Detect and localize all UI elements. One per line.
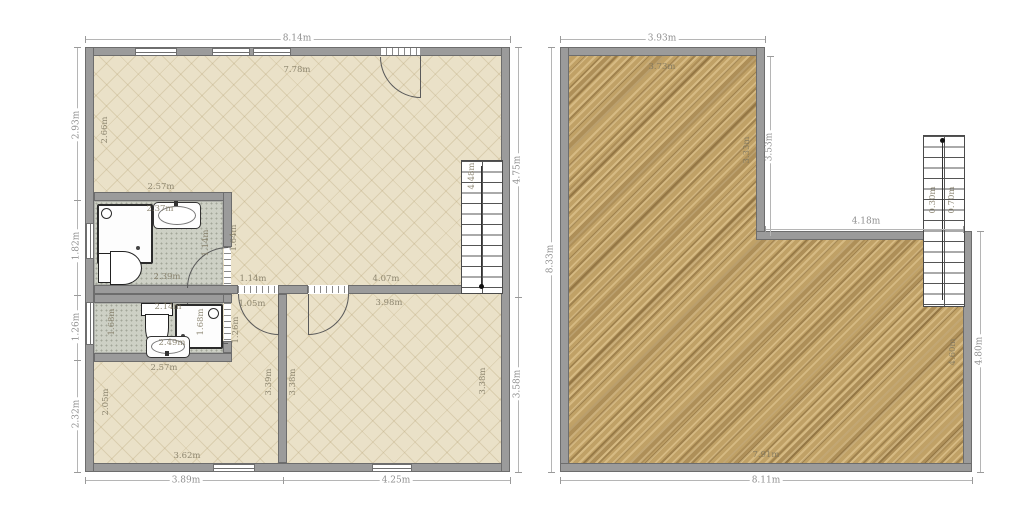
dim-label: 4.07m (373, 275, 400, 284)
dim-tick (560, 36, 561, 43)
dim-label: 1.82m (73, 230, 82, 263)
shower-head-icon (208, 308, 219, 319)
dim-label: 1.26m (232, 317, 241, 344)
dim-label: 1.05m (239, 300, 266, 309)
dim-label: 3.33m (743, 137, 752, 164)
dim-label: 4.18m (850, 218, 883, 227)
dim-tick (74, 295, 81, 296)
window (213, 464, 255, 472)
dim-label: 2.93m (73, 109, 82, 142)
dim-line (765, 229, 963, 230)
dim-tick (74, 47, 81, 48)
dim-label: 2.57m (148, 183, 175, 192)
dim-label: 3.89m (170, 477, 203, 486)
dim-tick (510, 36, 511, 43)
dim-label: 3.62m (174, 452, 201, 461)
dim-label: 4.75m (514, 154, 523, 187)
dim-tick (767, 236, 774, 237)
dim-tick (74, 200, 81, 201)
wall (223, 294, 232, 303)
dim-label: 2.39m (154, 273, 181, 282)
dim-label: 8.11m (750, 477, 783, 486)
dim-label: 4.48m (468, 163, 477, 190)
dim-label: 0.30m (929, 187, 938, 214)
dim-label: 3.38m (479, 368, 488, 395)
room-open-floor (569, 56, 963, 463)
dim-tick (515, 297, 522, 298)
dim-tick (283, 477, 284, 484)
dim-tick (85, 477, 86, 484)
window (372, 464, 412, 472)
dim-tick (74, 360, 81, 361)
dim-tick (85, 36, 86, 43)
dim-label: 3.39m (265, 369, 274, 396)
dim-label: 8.14m (281, 35, 314, 44)
wall (85, 463, 510, 472)
dim-label: 3.73m (649, 63, 676, 72)
dim-label: 3.53m (766, 131, 775, 164)
dim-label: 1.68m (197, 309, 206, 336)
dim-tick (977, 472, 984, 473)
dim-tick (972, 477, 973, 484)
window (86, 302, 94, 345)
stairs-arrow (481, 166, 482, 286)
dim-label: 4.80m (976, 335, 985, 368)
wall (560, 463, 972, 472)
dim-label: 8.33m (547, 243, 556, 276)
dim-label: 1.64m (230, 225, 239, 252)
dim-tick (765, 226, 766, 233)
stairs-arrow (942, 143, 943, 300)
dim-label: 7.91m (753, 451, 780, 460)
dim-label: 2.49m (159, 339, 186, 348)
window (253, 48, 291, 56)
stairs (923, 135, 965, 307)
dim-line (518, 47, 519, 472)
dim-line (85, 480, 510, 481)
sink-tap (174, 201, 178, 206)
sink-tap (165, 351, 169, 356)
door-opening (380, 48, 420, 55)
wall (278, 285, 308, 294)
dim-tick (560, 477, 561, 484)
wall (560, 47, 569, 472)
dim-tick (765, 36, 766, 43)
dim-tick (548, 47, 555, 48)
wall (94, 192, 232, 201)
dim-label: 2.66m (101, 117, 110, 144)
shower-drain (136, 246, 140, 250)
dim-label: 7.78m (284, 66, 311, 75)
dim-label: 1.14m (202, 230, 211, 257)
wall (560, 47, 765, 56)
dim-label: 2.32m (73, 398, 82, 431)
dim-label: 2.05m (102, 389, 111, 416)
dim-label: 0.70m (948, 187, 957, 214)
wall (85, 47, 94, 472)
dim-label: 3.38m (289, 369, 298, 396)
dim-label: 3.58m (514, 368, 523, 401)
dim-label: 1.68m (108, 309, 117, 336)
dim-label: 2.14m (155, 303, 182, 312)
dim-tick (977, 231, 984, 232)
dim-label: 4.60m (949, 339, 958, 366)
door-opening (308, 286, 348, 293)
dim-label: 1.26m (73, 311, 82, 344)
window (135, 48, 177, 56)
window (86, 223, 94, 259)
dim-tick (74, 472, 81, 473)
dim-label: 1.14m (240, 275, 267, 284)
dim-tick (510, 477, 511, 484)
floorplan-canvas: 8.14m 2.93m 1.82m 1.26m 2.32m 4.75m 3.58… (0, 0, 1024, 526)
shower-head-icon (101, 208, 112, 219)
door-opening (238, 286, 278, 293)
dim-label: 2.37m (147, 205, 174, 214)
wall (278, 294, 287, 463)
dim-label: 4.25m (380, 477, 413, 486)
dim-tick (963, 226, 964, 233)
stairs-arrow-dot (479, 284, 484, 289)
dim-tick (515, 47, 522, 48)
dim-tick (515, 472, 522, 473)
dim-tick (767, 56, 774, 57)
dim-tick (548, 472, 555, 473)
dim-label: 3.98m (376, 299, 403, 308)
window (212, 48, 250, 56)
dim-label: 3.93m (646, 35, 679, 44)
dim-label: 2.57m (151, 364, 178, 373)
